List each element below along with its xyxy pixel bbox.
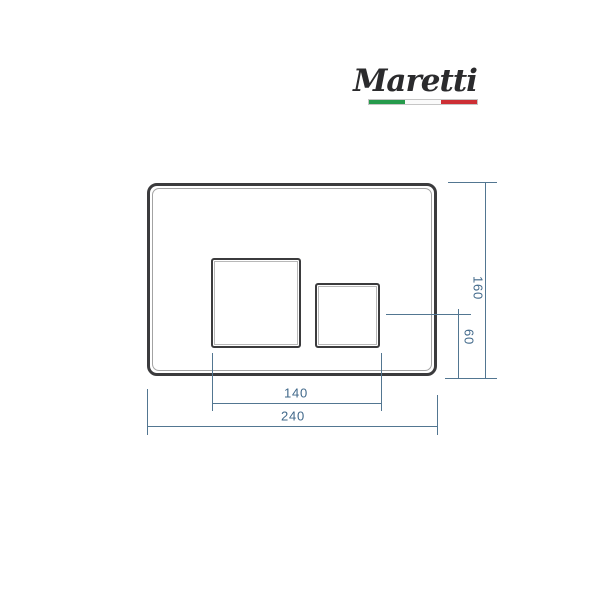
extension-line-bottom-right — [445, 378, 497, 379]
dimension-line-buttons-span — [212, 403, 382, 404]
extension-line-plate-right — [437, 395, 438, 435]
brand-logo-text: Maretti — [340, 64, 490, 98]
italy-flag-icon — [368, 99, 478, 105]
flag-green-stripe — [369, 100, 405, 104]
small-flush-button — [315, 283, 380, 348]
large-flush-button — [211, 258, 301, 348]
dimension-line-button-offset — [458, 309, 459, 379]
dimension-label-buttons-span: 140 — [284, 386, 308, 401]
dimension-label-button-offset: 60 — [462, 329, 477, 345]
flag-white-stripe — [405, 100, 441, 104]
flag-red-stripe — [441, 100, 477, 104]
dimension-label-plate-width: 240 — [281, 409, 305, 424]
extension-line-top-right — [448, 182, 497, 183]
flush-plate-outline — [147, 183, 437, 376]
technical-drawing-canvas: Maretti 160 60 140 240 — [0, 0, 600, 600]
dimension-line-plate-width — [147, 426, 438, 427]
extension-line-plate-left — [147, 389, 148, 435]
dimension-label-plate-height: 160 — [471, 276, 486, 300]
brand-logo: Maretti — [340, 64, 490, 109]
